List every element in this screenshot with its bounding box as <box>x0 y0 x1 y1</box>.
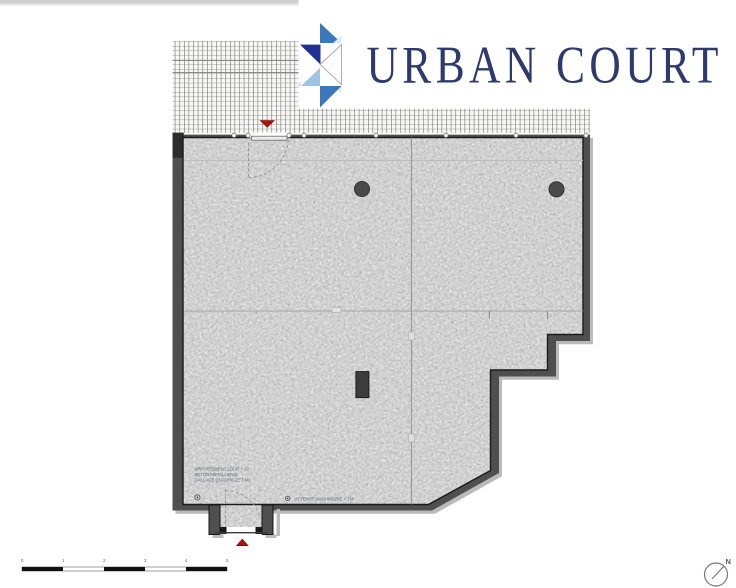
svg-text:DALLAGE QUADRILLE 7 M2: DALLAGE QUADRILLE 7 M2 <box>195 478 252 483</box>
svg-text:APPARTEMENT LOUE + 22: APPARTEMENT LOUE + 22 <box>195 467 250 472</box>
svg-text:N: N <box>726 557 731 566</box>
svg-text:BETON METALLIQUE: BETON METALLIQUE <box>195 472 238 477</box>
svg-text:URBAN COURT: URBAN COURT <box>367 37 723 95</box>
svg-text:ATTENTE MACHINERIE + TM: ATTENTE MACHINERIE + TM <box>295 497 354 502</box>
